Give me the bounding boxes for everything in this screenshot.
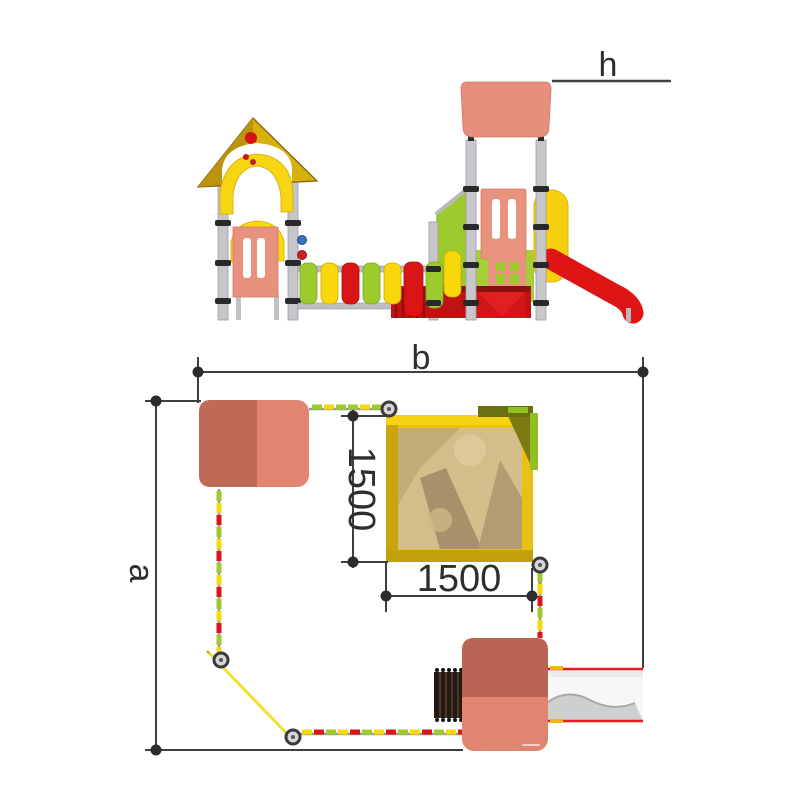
roof-plan-dark <box>462 638 548 697</box>
dimension-h-label: h <box>599 46 618 84</box>
green-panel-edge-plan <box>530 413 538 470</box>
door-slot <box>257 238 265 278</box>
panel-slot <box>492 199 500 239</box>
slide-mount <box>550 666 563 670</box>
roof-mark <box>522 744 540 746</box>
slide-foot <box>626 308 631 322</box>
dimension-a-label: a <box>122 564 160 583</box>
sandbox-depth-label: 1500 <box>340 447 382 532</box>
dimension-endpoint <box>381 591 392 602</box>
fence-post-center <box>387 407 391 411</box>
fence-bottom-plan <box>298 732 462 734</box>
panel-top-green-plan <box>508 407 528 413</box>
fence-post-center <box>291 735 295 739</box>
left-tower-elevation <box>198 118 317 320</box>
dimension-sandbox-depth: 1500 <box>340 410 388 568</box>
drawing-canvas: h <box>0 0 800 800</box>
roof-plan-dark <box>199 400 257 487</box>
slide-elevation <box>551 259 633 313</box>
panel-leg <box>236 295 241 320</box>
fence-right-plan <box>538 566 542 638</box>
dimension-endpoint <box>638 367 649 378</box>
plan-view: b a <box>122 339 649 756</box>
sand-highlight <box>428 508 452 532</box>
dimension-endpoint <box>151 745 162 756</box>
roof-ornament <box>245 132 257 144</box>
roof-ornament <box>243 154 249 160</box>
fence-post-center <box>219 658 223 662</box>
climb-knob-red <box>298 251 307 260</box>
slide-plan <box>548 666 643 723</box>
hanging-panel <box>481 189 526 259</box>
panel-slot <box>508 199 516 239</box>
flat-roof-panel <box>461 82 551 137</box>
dimension-endpoint <box>193 367 204 378</box>
sandbox-width-label: 1500 <box>417 558 502 600</box>
fence-top-plan <box>309 407 386 409</box>
climb-grid-plan <box>434 668 463 722</box>
dimension-h: h <box>552 46 671 84</box>
slide-top-shade <box>548 670 643 677</box>
sandbox-plan <box>386 406 538 562</box>
right-tower-roof-plan <box>462 638 548 751</box>
right-tower-elevation <box>300 82 633 322</box>
sand-highlight <box>454 434 486 466</box>
dimension-endpoint <box>151 396 162 407</box>
dimension-sandbox-width: 1500 <box>381 558 538 612</box>
dimension-endpoint <box>348 411 359 422</box>
fence-post-center <box>538 563 542 567</box>
door-slot <box>243 238 251 278</box>
slide-mount <box>550 719 563 723</box>
left-tower-roof-plan <box>199 400 309 487</box>
dimension-endpoint <box>348 557 359 568</box>
playground-dimension-drawing: h <box>0 0 800 800</box>
dimension-b-label: b <box>412 339 431 377</box>
elevation-view: h <box>198 46 671 322</box>
door-panel <box>233 227 278 297</box>
climb-knob-blue <box>298 236 307 245</box>
hanging-panel-lower <box>488 258 526 286</box>
panel-leg <box>274 295 279 320</box>
sandbox-frame-left <box>386 415 398 562</box>
roof-ornament <box>250 159 256 165</box>
dimension-endpoint <box>527 591 538 602</box>
